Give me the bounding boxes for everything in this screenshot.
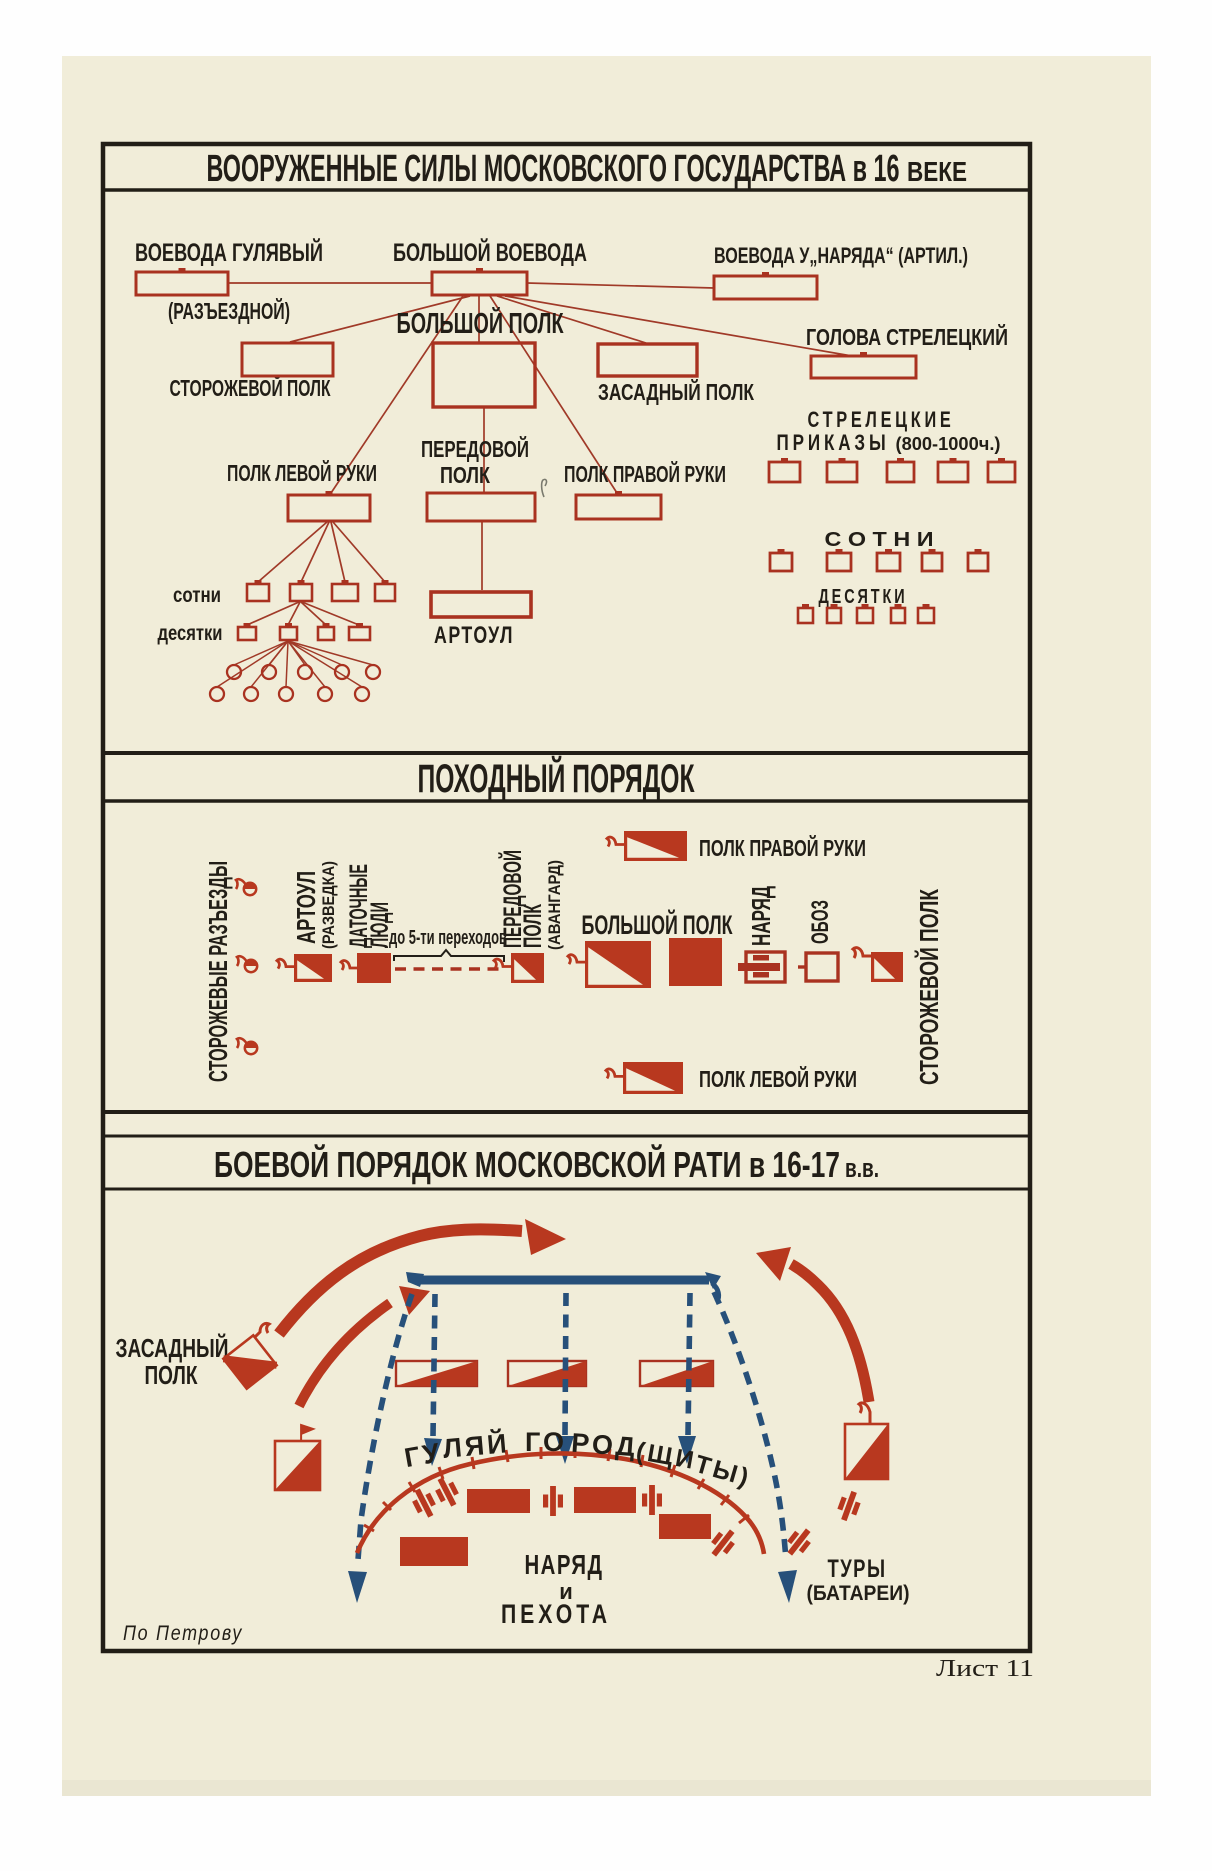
svg-text:ВОЕВОДА У„НАРЯДА“ (АРТИЛ.): ВОЕВОДА У„НАРЯДА“ (АРТИЛ.) <box>714 243 968 268</box>
svg-text:ПОЛК ПРАВОЙ РУКИ: ПОЛК ПРАВОЙ РУКИ <box>699 834 866 861</box>
svg-text:БОЛЬШОЙ ВОЕВОДА: БОЛЬШОЙ ВОЕВОДА <box>393 237 587 267</box>
svg-text:ПОЛК: ПОЛК <box>519 904 547 948</box>
svg-text:БОЛЬШОЙ ПОЛК: БОЛЬШОЙ ПОЛК <box>582 909 733 940</box>
svg-text:СТОРОЖЕВОЙ ПОЛК: СТОРОЖЕВОЙ ПОЛК <box>914 889 944 1085</box>
svg-text:(БАТАРЕИ): (БАТАРЕИ) <box>807 1582 910 1605</box>
svg-text:СТОРОЖЕВОЙ ПОЛК: СТОРОЖЕВОЙ ПОЛК <box>170 374 332 401</box>
svg-text:ЗАСАДНЫЙ: ЗАСАДНЫЙ <box>116 1333 229 1363</box>
svg-text:СТРЕЛЕЦКИЕ: СТРЕЛЕЦКИЕ <box>808 407 955 432</box>
svg-text:в.в.: в.в. <box>845 1153 879 1183</box>
svg-text:АРТОУЛ: АРТОУЛ <box>434 622 514 649</box>
svg-text:ВОЕВОДА ГУЛЯВЫЙ: ВОЕВОДА ГУЛЯВЫЙ <box>135 237 323 267</box>
svg-text:АРТОУЛ: АРТОУЛ <box>291 871 321 944</box>
svg-text:ЗАСАДНЫЙ ПОЛК: ЗАСАДНЫЙ ПОЛК <box>598 378 755 405</box>
svg-text:(РАЗЪЕЗДНОЙ): (РАЗЪЕЗДНОЙ) <box>168 297 290 324</box>
svg-text:ПОЛК: ПОЛК <box>145 1360 198 1390</box>
svg-text:РОД: РОД <box>570 1428 638 1463</box>
svg-text:ГО: ГО <box>525 1427 567 1457</box>
svg-text:ПРИКАЗЫ: ПРИКАЗЫ <box>777 430 890 455</box>
svg-text:(800-1000ч.): (800-1000ч.) <box>896 434 1001 454</box>
svg-text:НАРЯД: НАРЯД <box>746 886 776 946</box>
svg-text:ПОЛК ЛЕВОЙ РУКИ: ПОЛК ЛЕВОЙ РУКИ <box>227 459 377 486</box>
svg-text:ПОЛК: ПОЛК <box>440 462 491 488</box>
svg-text:По Петрову: По Петрову <box>123 1622 243 1645</box>
svg-text:ПОЛК ПРАВОЙ РУКИ: ПОЛК ПРАВОЙ РУКИ <box>564 460 726 487</box>
svg-text:(АВАНГАРД): (АВАНГАРД) <box>545 860 564 950</box>
svg-text:ВООРУЖЕННЫЕ СИЛЫ МОСКОВСКОГО Г: ВООРУЖЕННЫЕ СИЛЫ МОСКОВСКОГО ГОСУДАРСТВА… <box>207 148 900 190</box>
svg-text:ВЕКЕ: ВЕКЕ <box>907 156 967 187</box>
svg-text:С О Т Н И: С О Т Н И <box>825 529 934 551</box>
svg-text:БОЛЬШОЙ ПОЛК: БОЛЬШОЙ ПОЛК <box>397 306 564 340</box>
svg-text:до 5-ти переходов: до 5-ти переходов <box>389 927 507 949</box>
svg-text:Лист 11: Лист 11 <box>936 1656 1034 1682</box>
svg-text:сотни: сотни <box>173 584 221 607</box>
svg-text:ТУРЫ: ТУРЫ <box>828 1555 887 1583</box>
svg-text:ПЕХОТА: ПЕХОТА <box>501 1599 611 1629</box>
svg-text:(РАЗВЕДКА): (РАЗВЕДКА) <box>319 861 338 949</box>
svg-text:ЛЯЙ: ЛЯЙ <box>442 1427 511 1464</box>
svg-text:ОБОЗ: ОБОЗ <box>807 900 834 944</box>
svg-text:НАРЯД: НАРЯД <box>525 1549 604 1580</box>
svg-text:ПЕРЕДОВОЙ: ПЕРЕДОВОЙ <box>421 435 529 462</box>
svg-text:БОЕВОЙ ПОРЯДОК МОСКОВСКОЙ РАТИ: БОЕВОЙ ПОРЯДОК МОСКОВСКОЙ РАТИ в 16-17 <box>214 1143 840 1185</box>
svg-text:ПОХОДНЫЙ ПОРЯДОК: ПОХОДНЫЙ ПОРЯДОК <box>418 755 695 801</box>
svg-text:десятки: десятки <box>158 622 223 645</box>
svg-text:СТОРОЖЕВЫЕ РАЗЪЕЗДЫ: СТОРОЖЕВЫЕ РАЗЪЕЗДЫ <box>203 861 233 1082</box>
svg-text:ГОЛОВА СТРЕЛЕЦКИЙ: ГОЛОВА СТРЕЛЕЦКИЙ <box>806 323 1008 350</box>
svg-text:ПОЛК ЛЕВОЙ РУКИ: ПОЛК ЛЕВОЙ РУКИ <box>699 1065 857 1092</box>
